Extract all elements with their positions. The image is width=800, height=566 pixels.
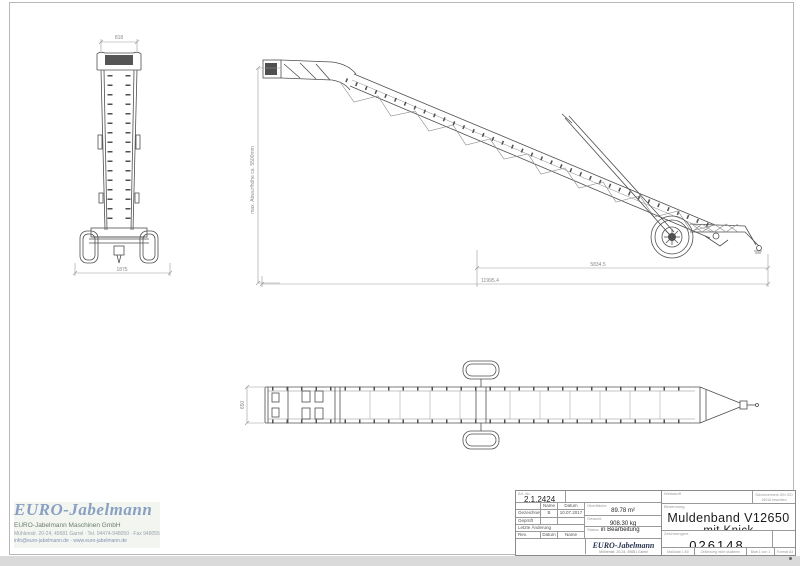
schutzvermerk-line2: 16016 beachten <box>753 498 795 503</box>
drawing-title-line1: Muldenband V12650 <box>662 512 795 525</box>
werkstoff-cell: Werkstoff <box>661 491 753 504</box>
top-view-drawing <box>265 361 759 449</box>
dimension-label-width-overall: 1875 <box>116 267 127 273</box>
oberflaeche-cell: Oberfläche 89.78 m² <box>585 503 661 516</box>
benennung-label: Benennung <box>662 504 795 509</box>
dimension-label-discharge-height: max. Abwurfhöhe ca. 5500mm <box>250 146 256 214</box>
benennung-cell: Benennung Muldenband V12650 mit Knick <box>661 504 795 531</box>
scan-artifact-dot <box>789 557 792 560</box>
company-logo: EURO-Jabelmann <box>14 500 164 520</box>
schutzvermerk-line1: Schutzvermerk DIN ISO <box>753 491 795 498</box>
company-watermark: EURO-Jabelmann EURO-Jabelmann Maschinen … <box>14 500 164 544</box>
zeichnungsnr-cell: Zeichnungsnr. 026148 <box>661 531 773 548</box>
dimension-label-belt-width: 650 <box>240 401 246 410</box>
status-cell: Status: in Bearbeitung <box>585 527 661 539</box>
head-pulley <box>105 55 133 65</box>
status-label: Status: <box>585 527 599 532</box>
schutzvermerk-cell: Schutzvermerk DIN ISO 16016 beachten <box>753 491 795 504</box>
logo-spacer <box>516 539 586 554</box>
knick-bend <box>332 62 356 74</box>
dimension-label-overall-length: 11995.4 <box>481 278 499 284</box>
aenderung-label: Letzte Änderung <box>516 525 585 532</box>
zeichnungsnr-label: Zeichnungsnr. <box>662 531 772 536</box>
side-view-dimensions <box>256 66 770 287</box>
artnr-value: 2.1.2424 <box>516 496 565 503</box>
status-value: in Bearbeitung <box>601 527 640 533</box>
chassis <box>91 228 147 237</box>
blatt-cell: Blatt 1 von 1 <box>747 548 775 555</box>
technical-drawing-sheet: 818 1875 <box>0 0 800 566</box>
front-view-drawing <box>80 52 158 263</box>
artnr-spacer <box>566 491 661 503</box>
titleblock-logo-cell: EURO-Jabelmann Mühlenstr. 20-24, 49681 G… <box>586 539 661 554</box>
massstab-cell: Maßstab 1:50 <box>661 548 695 555</box>
col-name: Name <box>541 503 558 510</box>
geprueft-name <box>541 518 558 525</box>
dimension-label-width-top: 818 <box>115 35 124 41</box>
company-contact: info@euro-jabelmann.de · www.euro-jabelm… <box>14 538 164 544</box>
zeichnungsnr-spacer <box>773 531 795 548</box>
geprueft-datum <box>558 518 585 525</box>
oberflaeche-value: 89.78 m² <box>585 508 661 515</box>
geprueft-label: Geprüft <box>516 518 541 525</box>
top-view-dimensions <box>245 385 264 425</box>
drawing-number: 026148 <box>662 538 772 548</box>
tow-hitch <box>745 226 756 245</box>
gewicht-cell: Gewicht 908.30 kg <box>585 516 661 527</box>
front-view: 818 1875 <box>55 25 195 285</box>
artnr-cell: Art.-Nr. 2.1.2424 <box>516 491 566 503</box>
cleat-ticks <box>346 80 713 227</box>
col-datum: Datum <box>558 503 585 510</box>
rev-label: Rev. <box>516 532 541 539</box>
company-address: Mühlenstr. 20-24, 49681 Garrel · Tel. 04… <box>14 531 164 537</box>
gezeichnet-datum: 10.07.2017 <box>558 510 585 518</box>
gezeichnet-name: B <box>541 510 558 518</box>
titleblock-logo: EURO-Jabelmann <box>586 541 661 550</box>
company-name: EURO-Jabelmann Maschinen GmbH <box>14 522 164 529</box>
top-view: 650 <box>240 355 775 465</box>
front-view-dimensions <box>73 39 172 276</box>
truss-bracing <box>340 82 715 231</box>
dimension-label-axle-length: 5834.5 <box>590 262 606 268</box>
tbl-corner <box>516 503 541 510</box>
side-view-drawing <box>263 60 762 258</box>
format-cell: Format A3 <box>775 548 795 555</box>
werkstoff-label: Werkstoff <box>662 491 752 496</box>
gezeichnet-label: Gezeichnet <box>516 510 541 518</box>
rev-datum-label: Datum <box>541 532 558 539</box>
scan-edge-strip <box>0 556 800 566</box>
hinweis-cell: Zeichnung nicht skalieren <box>695 548 747 555</box>
title-block: Art.-Nr. 2.1.2424 Name Datum Gezeichnet … <box>515 490 796 556</box>
rev-name-label: Name <box>558 532 585 539</box>
side-view: max. Abwurfhöhe ca. 5500mm 5834.5 11995.… <box>250 40 780 300</box>
drawbar-stub <box>114 246 124 255</box>
